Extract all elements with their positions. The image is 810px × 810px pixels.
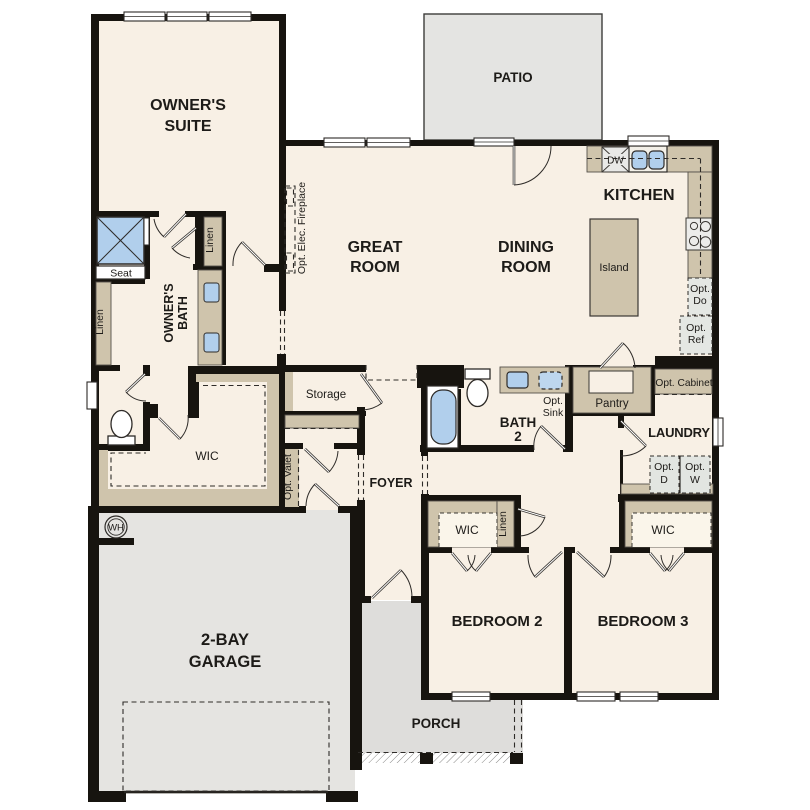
svg-text:Opt.: Opt. xyxy=(685,461,705,473)
svg-text:OWNER'S: OWNER'S xyxy=(162,283,176,342)
svg-text:PATIO: PATIO xyxy=(493,70,532,85)
svg-text:BATH: BATH xyxy=(500,415,537,430)
svg-text:BEDROOM 2: BEDROOM 2 xyxy=(452,613,543,630)
svg-text:WIC: WIC xyxy=(651,523,675,537)
svg-text:W: W xyxy=(690,474,700,486)
svg-text:Storage: Storage xyxy=(306,389,346,401)
svg-text:DINING: DINING xyxy=(498,239,554,256)
svg-text:Linen: Linen xyxy=(94,309,106,335)
svg-text:Opt.: Opt. xyxy=(686,322,706,334)
svg-text:Pantry: Pantry xyxy=(595,398,628,410)
svg-text:Linen: Linen xyxy=(497,511,509,537)
svg-text:Opt.: Opt. xyxy=(654,461,674,473)
svg-text:Seat: Seat xyxy=(110,268,132,280)
svg-text:GARAGE: GARAGE xyxy=(189,653,261,671)
svg-text:Sink: Sink xyxy=(543,407,564,419)
svg-text:Do: Do xyxy=(693,295,707,307)
svg-text:WIC: WIC xyxy=(455,523,479,537)
svg-text:GREAT: GREAT xyxy=(348,239,403,256)
svg-text:ROOM: ROOM xyxy=(501,259,551,276)
svg-text:WH: WH xyxy=(108,523,124,534)
svg-text:DW: DW xyxy=(607,156,624,167)
svg-text:Linen: Linen xyxy=(204,227,216,253)
svg-text:BEDROOM 3: BEDROOM 3 xyxy=(598,613,689,630)
svg-text:Opt. Elec. Fireplace: Opt. Elec. Fireplace xyxy=(296,182,308,274)
svg-text:FOYER: FOYER xyxy=(369,476,412,490)
svg-text:WIC: WIC xyxy=(195,449,219,463)
svg-text:2-BAY: 2-BAY xyxy=(201,631,249,649)
svg-text:LAUNDRY: LAUNDRY xyxy=(648,425,710,440)
svg-text:Ref: Ref xyxy=(688,334,704,346)
svg-text:D: D xyxy=(660,474,668,486)
svg-text:2: 2 xyxy=(514,429,522,444)
svg-text:BATH: BATH xyxy=(176,296,190,330)
svg-text:PORCH: PORCH xyxy=(412,716,461,731)
svg-text:Opt. Cabinet: Opt. Cabinet xyxy=(655,378,712,389)
svg-text:Opt.: Opt. xyxy=(543,395,563,407)
svg-text:KITCHEN: KITCHEN xyxy=(603,187,674,204)
svg-text:Opt.: Opt. xyxy=(690,283,710,295)
svg-text:OWNER'S: OWNER'S xyxy=(150,97,226,114)
svg-text:Opt. Valet: Opt. Valet xyxy=(282,454,294,500)
svg-text:SUITE: SUITE xyxy=(164,118,211,135)
svg-text:Island: Island xyxy=(599,262,628,274)
svg-text:ROOM: ROOM xyxy=(350,259,400,276)
